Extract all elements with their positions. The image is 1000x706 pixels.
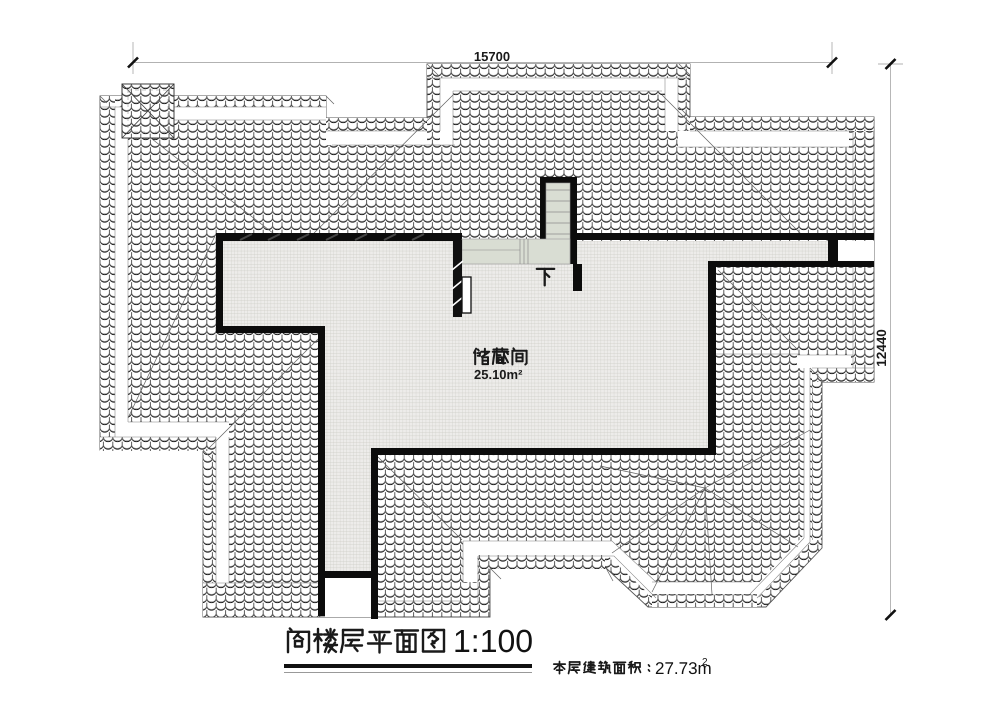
- svg-text:2: 2: [702, 657, 708, 668]
- svg-text:12440: 12440: [874, 329, 889, 367]
- svg-text:15700: 15700: [474, 49, 510, 64]
- svg-text:25.10m²: 25.10m²: [474, 367, 523, 382]
- svg-text:1:100: 1:100: [453, 623, 533, 659]
